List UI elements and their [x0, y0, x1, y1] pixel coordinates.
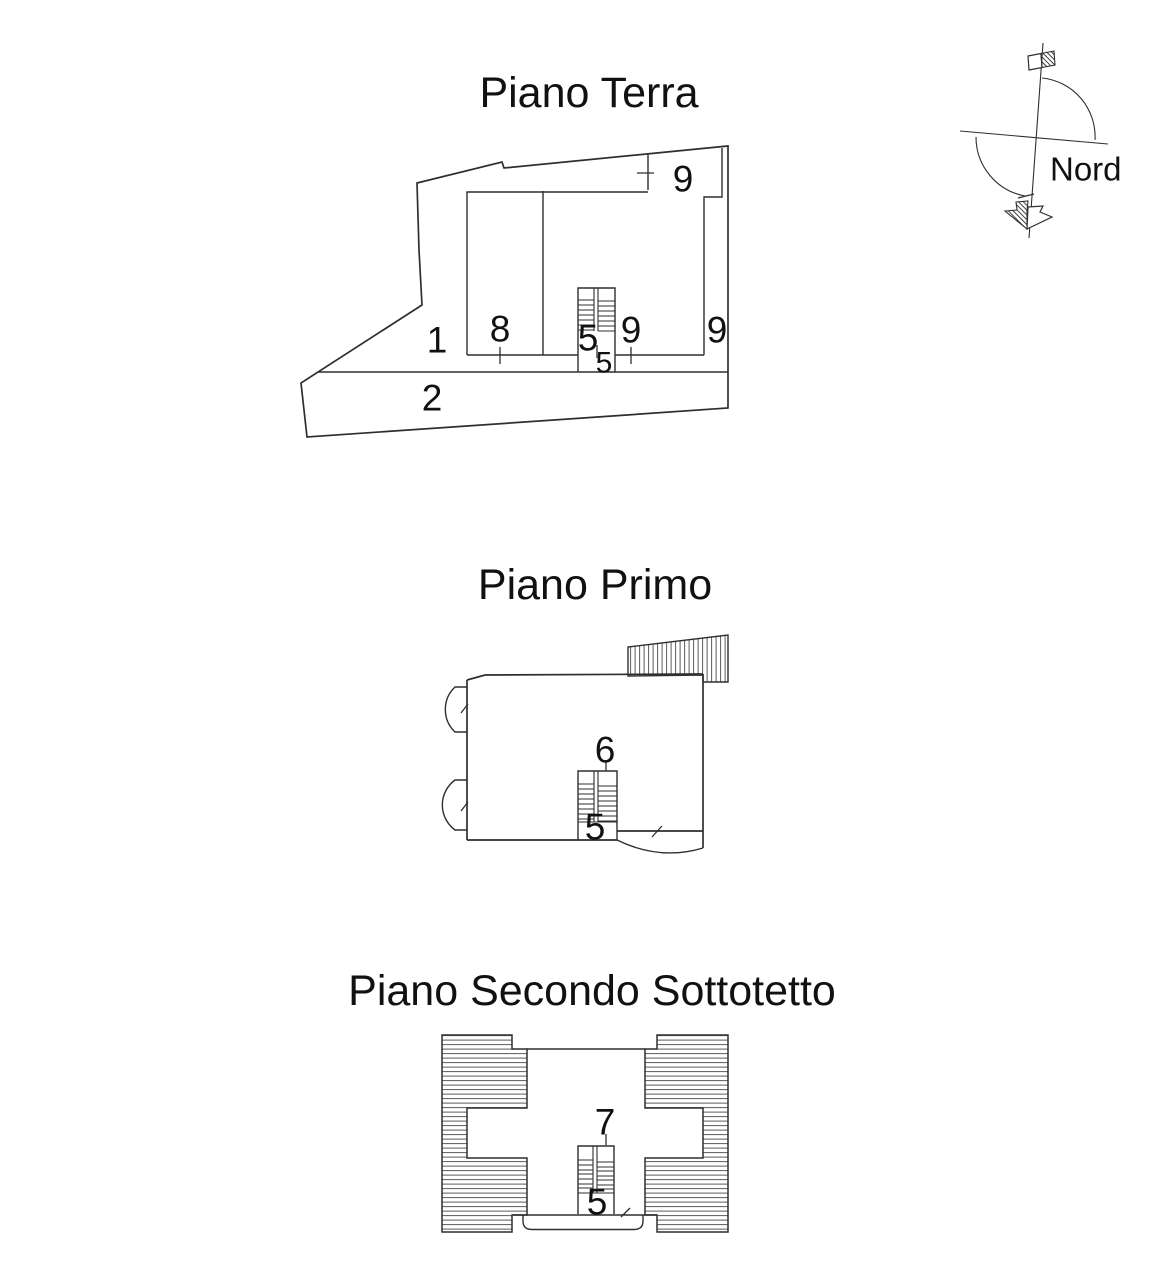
terra-label-area-1: 1 [427, 320, 448, 361]
piano-primo-plan: Piano Primo 6 5 [442, 561, 728, 853]
secondo-balcony-dormer [523, 1215, 643, 1230]
compass-arc-right [1042, 78, 1095, 140]
compass-arrow-hatched [1005, 201, 1028, 229]
piano-primo-title: Piano Primo [478, 561, 712, 609]
piano-terra-title: Piano Terra [479, 69, 698, 117]
compass-cross-line [960, 131, 1108, 144]
secondo-roof-hatch-left [442, 1035, 527, 1232]
terra-label-area-2: 2 [422, 378, 443, 419]
piano-secondo-plan: Piano Secondo Sottotetto 7 5 [348, 967, 836, 1232]
north-compass: Nord [960, 43, 1122, 238]
compass-nord-label: Nord [1050, 151, 1122, 188]
compass-flag-hatched [1041, 51, 1055, 68]
primo-bay-window-upper [445, 687, 468, 732]
piano-terra-plan: Piano Terra 1 2 8 5 5 9 9 9 [301, 69, 728, 437]
compass-arrow-outline [1027, 206, 1052, 229]
secondo-roof-hatch-right [645, 1035, 728, 1232]
compass-flag-white [1028, 54, 1042, 71]
primo-entrance-arc [617, 840, 703, 853]
terra-label-landing-5: 5 [596, 347, 613, 380]
primo-label-room-6: 6 [595, 730, 616, 771]
planimetry-page: Piano Terra 1 2 8 5 5 9 9 9 Piano Primo [0, 0, 1173, 1280]
primo-bay-window-lower [442, 780, 468, 830]
planimetry-drawing: Piano Terra 1 2 8 5 5 9 9 9 Piano Primo [0, 0, 1173, 1280]
terra-label-room-8: 8 [490, 309, 511, 350]
primo-label-stair-5: 5 [585, 807, 606, 848]
terra-label-top-9: 9 [673, 159, 694, 200]
compass-arc-left [976, 137, 1025, 196]
primo-bay-lower-outline [442, 780, 467, 830]
terra-label-mid-9: 9 [621, 310, 642, 351]
secondo-label-stair-5: 5 [587, 1182, 608, 1223]
piano-secondo-title: Piano Secondo Sottotetto [348, 967, 836, 1015]
secondo-label-room-7: 7 [595, 1102, 616, 1143]
terra-label-right-9: 9 [707, 310, 728, 351]
terra-outer-wall [301, 146, 728, 437]
secondo-ridge-lines [512, 1049, 657, 1215]
